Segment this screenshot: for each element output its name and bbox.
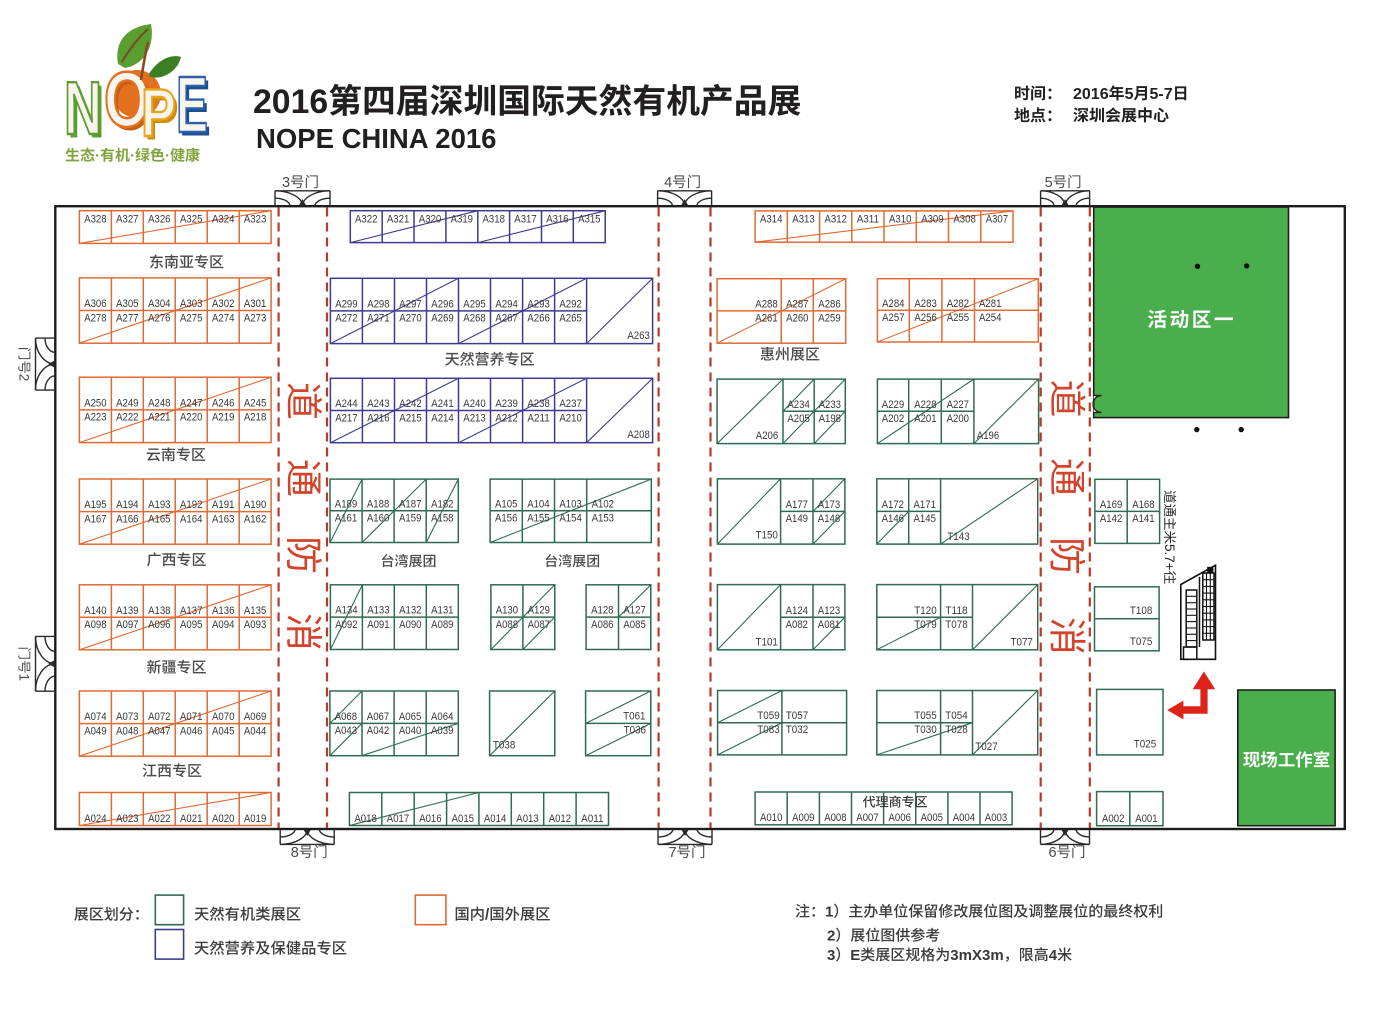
svg-text:A284: A284 [882, 298, 904, 310]
svg-text:A266: A266 [527, 313, 549, 325]
svg-text:A093: A093 [244, 619, 266, 631]
svg-text:A293: A293 [527, 299, 549, 311]
svg-text:P: P [141, 75, 176, 151]
svg-text:A048: A048 [116, 725, 138, 737]
svg-text:5: 5 [1125, 86, 1134, 103]
svg-text:A220: A220 [180, 412, 202, 424]
svg-text:A247: A247 [180, 398, 202, 410]
svg-text:A005: A005 [921, 812, 943, 824]
svg-text:A304: A304 [148, 298, 170, 310]
svg-text:A200: A200 [947, 413, 969, 425]
svg-text:A248: A248 [148, 398, 170, 410]
svg-text:A140: A140 [84, 605, 106, 617]
svg-text:A241: A241 [431, 398, 453, 410]
svg-text:A219: A219 [212, 412, 234, 424]
svg-text:A287: A287 [786, 299, 808, 311]
svg-text:A261: A261 [755, 313, 777, 325]
svg-text:A131: A131 [431, 605, 453, 617]
svg-text:A240: A240 [463, 398, 485, 410]
svg-text:A244: A244 [335, 398, 357, 410]
svg-text:A218: A218 [244, 412, 266, 424]
svg-text:A201: A201 [914, 413, 936, 425]
svg-text:A229: A229 [882, 399, 904, 411]
svg-text:A187: A187 [399, 498, 421, 510]
svg-text:A124: A124 [786, 605, 808, 617]
svg-text:A327: A327 [116, 214, 138, 226]
svg-text:A328: A328 [84, 214, 106, 226]
svg-text:A306: A306 [84, 298, 106, 310]
svg-text:A164: A164 [180, 513, 202, 525]
svg-text:A177: A177 [786, 499, 808, 511]
svg-text:A182: A182 [431, 498, 453, 510]
svg-text:A214: A214 [431, 412, 453, 424]
svg-text:A009: A009 [792, 812, 814, 824]
svg-text:A316: A316 [546, 214, 568, 226]
svg-text:A064: A064 [431, 711, 453, 723]
svg-text:8: 8 [291, 845, 299, 861]
svg-text:A172: A172 [882, 499, 904, 511]
svg-text:A278: A278 [84, 312, 106, 324]
svg-text:A273: A273 [244, 312, 266, 324]
svg-text:A217: A217 [335, 412, 357, 424]
svg-text:A269: A269 [431, 313, 453, 325]
svg-text:A303: A303 [180, 298, 202, 310]
svg-text:A090: A090 [399, 619, 421, 631]
svg-text:T077: T077 [1011, 636, 1033, 648]
svg-text:A325: A325 [180, 214, 202, 226]
svg-text:A021: A021 [180, 813, 202, 825]
svg-text:A068: A068 [335, 711, 357, 723]
svg-text:5: 5 [1045, 175, 1053, 191]
svg-text:A228: A228 [914, 399, 936, 411]
svg-text:A260: A260 [786, 313, 808, 325]
svg-text:T079: T079 [914, 619, 936, 631]
svg-text:A202: A202 [882, 413, 904, 425]
svg-text:A302: A302 [212, 298, 234, 310]
svg-text:A097: A097 [116, 619, 138, 631]
svg-text:A137: A137 [180, 605, 202, 617]
svg-text:2016: 2016 [1073, 86, 1109, 103]
svg-text:A160: A160 [367, 513, 389, 525]
svg-text:A098: A098 [84, 619, 106, 631]
svg-text:A094: A094 [212, 619, 234, 631]
svg-text:1: 1 [17, 674, 32, 682]
svg-text:A208: A208 [627, 429, 649, 441]
svg-text:A074: A074 [84, 711, 106, 723]
svg-text:A071: A071 [180, 711, 202, 723]
svg-text:A310: A310 [889, 214, 911, 226]
svg-text:A190: A190 [244, 499, 266, 511]
svg-text:A238: A238 [527, 398, 549, 410]
svg-text:E: E [850, 947, 860, 964]
svg-text:A046: A046 [180, 725, 202, 737]
svg-text:T061: T061 [623, 710, 645, 722]
svg-text:A324: A324 [212, 214, 234, 226]
svg-text:A123: A123 [818, 605, 840, 617]
svg-text:A307: A307 [986, 214, 1008, 226]
svg-text:A006: A006 [889, 812, 911, 824]
svg-text:A188: A188 [367, 498, 389, 510]
svg-text:A138: A138 [148, 605, 170, 617]
svg-text:T055: T055 [914, 710, 936, 722]
svg-text:A227: A227 [947, 399, 969, 411]
svg-text:T032: T032 [786, 724, 808, 736]
svg-text:A045: A045 [212, 725, 234, 737]
svg-text:A047: A047 [148, 725, 170, 737]
svg-text:A234: A234 [787, 399, 809, 411]
svg-text:A085: A085 [623, 619, 645, 631]
svg-text:3: 3 [827, 947, 835, 964]
svg-text:T059: T059 [757, 710, 779, 722]
svg-text:A161: A161 [335, 513, 357, 525]
svg-text:A003: A003 [985, 812, 1007, 824]
svg-text:A257: A257 [882, 312, 904, 324]
svg-text:A167: A167 [84, 513, 106, 525]
svg-text:A129: A129 [528, 605, 550, 617]
svg-text:A206: A206 [756, 430, 778, 442]
svg-text:T108: T108 [1130, 605, 1152, 617]
svg-text:A012: A012 [549, 813, 571, 825]
svg-text:A082: A082 [786, 619, 808, 631]
svg-text:A132: A132 [399, 605, 421, 617]
svg-text:A298: A298 [367, 299, 389, 311]
svg-text:A315: A315 [578, 214, 600, 226]
svg-text:2: 2 [827, 928, 835, 945]
svg-text:A242: A242 [399, 398, 421, 410]
svg-text:A154: A154 [559, 513, 581, 525]
svg-text:A165: A165 [148, 513, 170, 525]
svg-text:2016: 2016 [253, 83, 328, 121]
svg-text:T143: T143 [947, 531, 969, 543]
svg-text:A024: A024 [84, 813, 106, 825]
svg-text:T028: T028 [945, 724, 967, 736]
svg-text:A239: A239 [495, 398, 517, 410]
svg-text:A004: A004 [953, 812, 975, 824]
svg-text:A166: A166 [116, 513, 138, 525]
svg-text:A086: A086 [591, 619, 613, 631]
svg-text:A283: A283 [914, 298, 936, 310]
svg-text:T027: T027 [975, 741, 997, 753]
svg-text:A275: A275 [180, 312, 202, 324]
svg-text:T118: T118 [945, 605, 967, 617]
svg-text:A095: A095 [180, 619, 202, 631]
svg-text:A256: A256 [914, 312, 936, 324]
svg-text:A001: A001 [1135, 813, 1157, 825]
svg-text:A267: A267 [495, 313, 517, 325]
svg-text:A245: A245 [244, 398, 266, 410]
svg-text:A134: A134 [335, 605, 357, 617]
svg-text:T150: T150 [756, 530, 778, 542]
svg-text:A320: A320 [419, 214, 441, 226]
svg-text:A288: A288 [755, 299, 777, 311]
svg-text:A254: A254 [979, 312, 1001, 324]
svg-text:A243: A243 [367, 398, 389, 410]
svg-text:A142: A142 [1100, 513, 1122, 525]
svg-text:A314: A314 [760, 214, 782, 226]
svg-text:A002: A002 [1102, 813, 1124, 825]
svg-text:A102: A102 [592, 498, 614, 510]
svg-text:A277: A277 [116, 312, 138, 324]
svg-text:A105: A105 [495, 498, 517, 510]
svg-text:A193: A193 [148, 499, 170, 511]
svg-text:5-7: 5-7 [1150, 86, 1173, 103]
svg-text:A326: A326 [148, 214, 170, 226]
svg-text:A271: A271 [367, 313, 389, 325]
svg-text:A155: A155 [527, 513, 549, 525]
svg-text:A087: A087 [528, 619, 550, 631]
svg-text:A299: A299 [335, 299, 357, 311]
svg-text:A039: A039 [431, 725, 453, 737]
svg-text:A274: A274 [212, 312, 234, 324]
svg-text:A189: A189 [335, 498, 357, 510]
svg-text:A169: A169 [1100, 499, 1122, 511]
svg-text:A322: A322 [355, 214, 377, 226]
svg-text:A103: A103 [559, 498, 581, 510]
svg-text:A171: A171 [914, 499, 936, 511]
svg-text:N: N [64, 66, 102, 150]
svg-text:A246: A246 [212, 398, 234, 410]
svg-text:NOPE CHINA 2016: NOPE CHINA 2016 [256, 123, 496, 154]
svg-text:A194: A194 [116, 499, 138, 511]
svg-text:A010: A010 [760, 812, 782, 824]
svg-text:A016: A016 [419, 813, 441, 825]
svg-text:A096: A096 [148, 619, 170, 631]
svg-text:A233: A233 [819, 399, 841, 411]
svg-text:A211: A211 [527, 412, 549, 424]
svg-text:T030: T030 [914, 724, 936, 736]
svg-text:A295: A295 [463, 299, 485, 311]
svg-text:A276: A276 [148, 312, 170, 324]
svg-text:T036: T036 [624, 725, 646, 737]
svg-text:A296: A296 [431, 299, 453, 311]
svg-text:A127: A127 [623, 605, 645, 617]
svg-text:A317: A317 [514, 214, 536, 226]
svg-text:A312: A312 [825, 214, 847, 226]
svg-text:A222: A222 [116, 412, 138, 424]
svg-text:A313: A313 [792, 214, 814, 226]
svg-text:A081: A081 [818, 619, 840, 631]
svg-text:A163: A163 [212, 513, 234, 525]
svg-text:A210: A210 [559, 412, 581, 424]
svg-text:A040: A040 [399, 725, 421, 737]
svg-text:A146: A146 [882, 513, 904, 525]
svg-text:7: 7 [669, 845, 677, 861]
svg-text:A014: A014 [484, 813, 506, 825]
svg-text:A286: A286 [818, 299, 840, 311]
svg-text:A015: A015 [452, 813, 474, 825]
svg-text:A044: A044 [244, 725, 266, 737]
svg-text:A297: A297 [399, 299, 421, 311]
svg-text:A135: A135 [244, 605, 266, 617]
svg-text:A263: A263 [627, 330, 649, 342]
svg-text:A136: A136 [212, 605, 234, 617]
svg-text:T038: T038 [493, 740, 515, 752]
svg-text:A255: A255 [947, 312, 969, 324]
svg-text:A321: A321 [387, 214, 409, 226]
svg-text:A308: A308 [953, 214, 975, 226]
svg-text:A318: A318 [483, 214, 505, 226]
svg-text:A215: A215 [399, 412, 421, 424]
svg-text:A294: A294 [495, 299, 517, 311]
svg-text:A104: A104 [527, 498, 549, 510]
svg-text:A221: A221 [148, 412, 170, 424]
svg-text:4: 4 [664, 175, 672, 191]
svg-text:A205: A205 [787, 413, 809, 425]
svg-text:A311: A311 [857, 214, 879, 226]
svg-text:A292: A292 [559, 299, 581, 311]
svg-text:A281: A281 [979, 298, 1001, 310]
svg-text:A022: A022 [148, 813, 170, 825]
svg-text:A073: A073 [116, 711, 138, 723]
svg-text:A198: A198 [819, 413, 841, 425]
svg-text:A139: A139 [116, 605, 138, 617]
svg-text:A145: A145 [914, 513, 936, 525]
svg-text:·: · [165, 148, 170, 165]
svg-text:A223: A223 [84, 412, 106, 424]
svg-text:T057: T057 [786, 710, 808, 722]
svg-text:A265: A265 [559, 313, 581, 325]
svg-text:A305: A305 [116, 298, 138, 310]
svg-text:A309: A309 [921, 214, 943, 226]
svg-text:T120: T120 [914, 605, 936, 617]
svg-text:A130: A130 [496, 605, 518, 617]
svg-text:·: · [130, 148, 135, 165]
svg-text:2: 2 [17, 374, 32, 382]
svg-text:A270: A270 [399, 313, 421, 325]
svg-text:A153: A153 [592, 513, 614, 525]
svg-text:E: E [176, 60, 208, 149]
svg-text:A216: A216 [367, 412, 389, 424]
svg-text:A128: A128 [591, 605, 613, 617]
svg-text:A213: A213 [463, 412, 485, 424]
svg-text:A042: A042 [367, 725, 389, 737]
svg-text:T054: T054 [945, 710, 967, 722]
svg-text:A173: A173 [818, 499, 840, 511]
svg-text:A196: A196 [977, 430, 999, 442]
svg-text:A020: A020 [212, 813, 234, 825]
svg-text:A065: A065 [399, 711, 421, 723]
svg-text:A011: A011 [581, 813, 603, 825]
svg-text:A049: A049 [84, 725, 106, 737]
svg-text:A023: A023 [116, 813, 138, 825]
svg-text:A007: A007 [856, 812, 878, 824]
svg-text:6: 6 [1049, 845, 1057, 861]
svg-text:A191: A191 [212, 499, 234, 511]
svg-text:A008: A008 [824, 812, 846, 824]
svg-text:A069: A069 [244, 711, 266, 723]
svg-text:A272: A272 [335, 313, 357, 325]
svg-text:A141: A141 [1132, 513, 1154, 525]
svg-text:1: 1 [825, 904, 833, 921]
svg-text:A237: A237 [559, 398, 581, 410]
svg-text:4: 4 [1049, 947, 1058, 964]
svg-text:A156: A156 [495, 513, 517, 525]
svg-text:A072: A072 [148, 711, 170, 723]
svg-text:A268: A268 [463, 313, 485, 325]
svg-text:A043: A043 [335, 725, 357, 737]
svg-text:3: 3 [282, 175, 290, 191]
svg-text:T101: T101 [756, 636, 778, 648]
svg-text:A282: A282 [947, 298, 969, 310]
svg-text:5.7+: 5.7+ [1162, 544, 1177, 571]
svg-text:A133: A133 [367, 605, 389, 617]
svg-text:A250: A250 [84, 398, 106, 410]
svg-text:A301: A301 [244, 298, 266, 310]
svg-text:A148: A148 [818, 513, 840, 525]
svg-text:A013: A013 [516, 813, 538, 825]
svg-text:A158: A158 [431, 513, 453, 525]
svg-text:A323: A323 [244, 214, 266, 226]
svg-text:A192: A192 [180, 499, 202, 511]
svg-text:A070: A070 [212, 711, 234, 723]
svg-text:A159: A159 [399, 513, 421, 525]
svg-text:A195: A195 [84, 499, 106, 511]
svg-text:A089: A089 [431, 619, 453, 631]
svg-text:A017: A017 [387, 813, 409, 825]
svg-text:A088: A088 [496, 619, 518, 631]
svg-text:T025: T025 [1134, 739, 1156, 751]
svg-text:A168: A168 [1132, 499, 1154, 511]
svg-text:A067: A067 [367, 711, 389, 723]
svg-text:3mX3m: 3mX3m [950, 947, 1003, 964]
svg-text:A319: A319 [451, 214, 473, 226]
svg-text:A091: A091 [367, 619, 389, 631]
svg-text:A259: A259 [818, 313, 840, 325]
svg-text:A019: A019 [244, 813, 266, 825]
svg-text:A162: A162 [244, 513, 266, 525]
svg-text:A249: A249 [116, 398, 138, 410]
svg-text:A092: A092 [335, 619, 357, 631]
svg-text:T083: T083 [757, 724, 779, 736]
svg-text:·: · [95, 148, 100, 165]
svg-text:T078: T078 [945, 619, 967, 631]
svg-text:T075: T075 [1130, 636, 1152, 648]
svg-text:A212: A212 [495, 412, 517, 424]
svg-text:A018: A018 [354, 813, 376, 825]
svg-text:A149: A149 [786, 513, 808, 525]
